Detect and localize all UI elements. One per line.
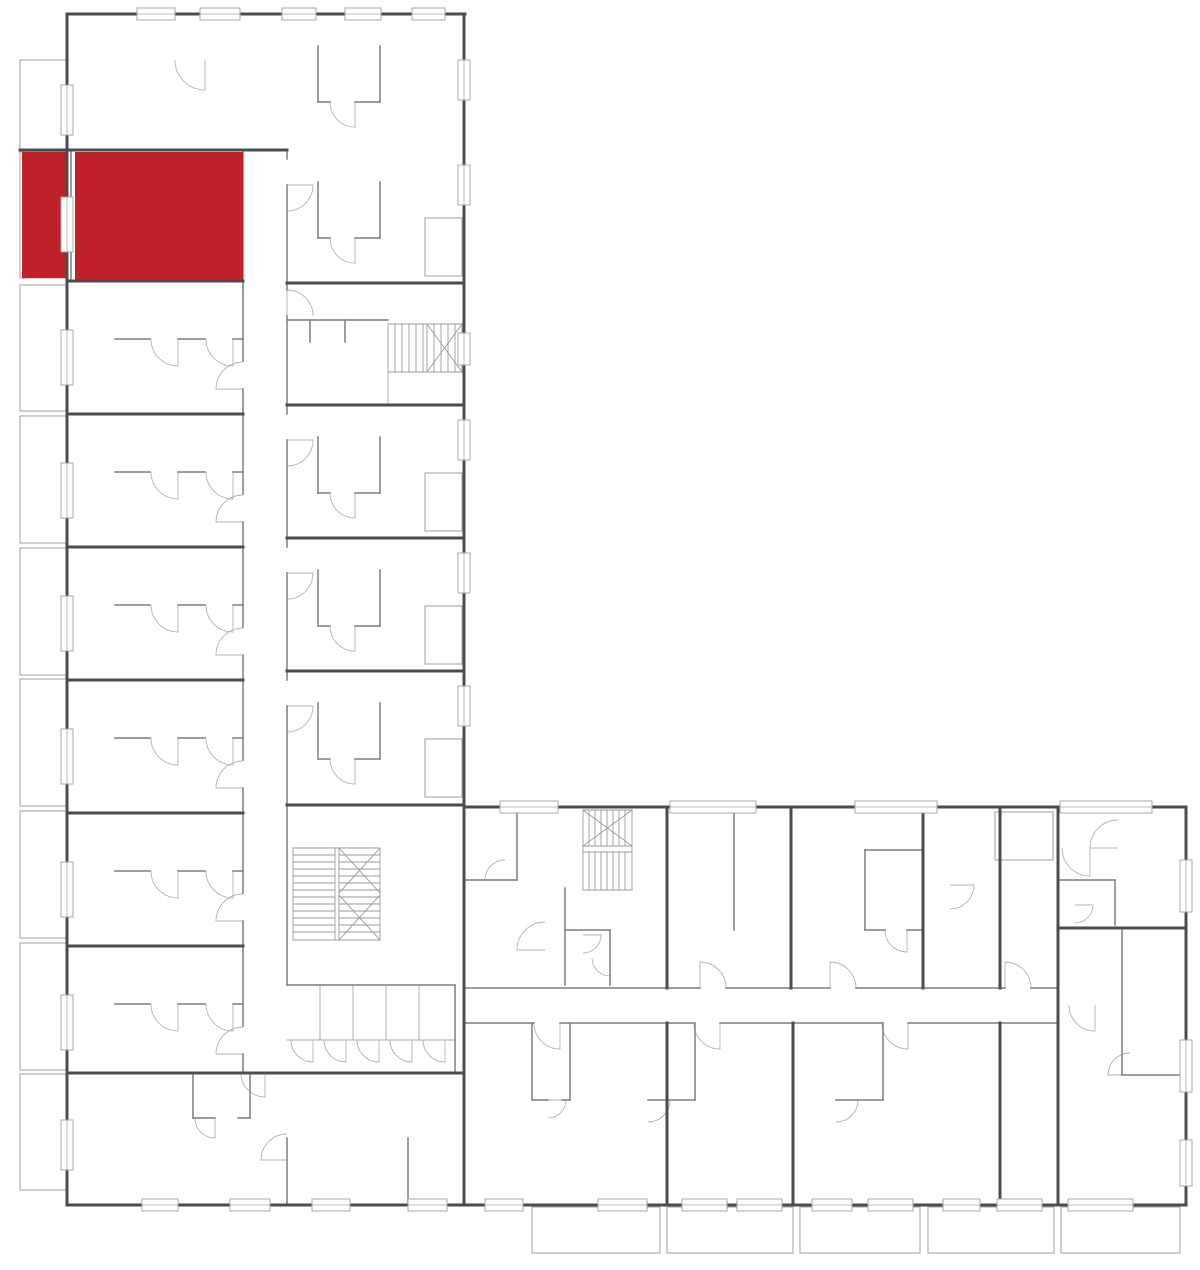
selected-unit-area[interactable] xyxy=(75,152,243,281)
floor-plan-svg xyxy=(0,0,1200,1270)
selected-unit-area[interactable] xyxy=(22,152,67,278)
selected-unit[interactable] xyxy=(22,152,243,281)
floor-plan-canvas xyxy=(0,0,1200,1270)
